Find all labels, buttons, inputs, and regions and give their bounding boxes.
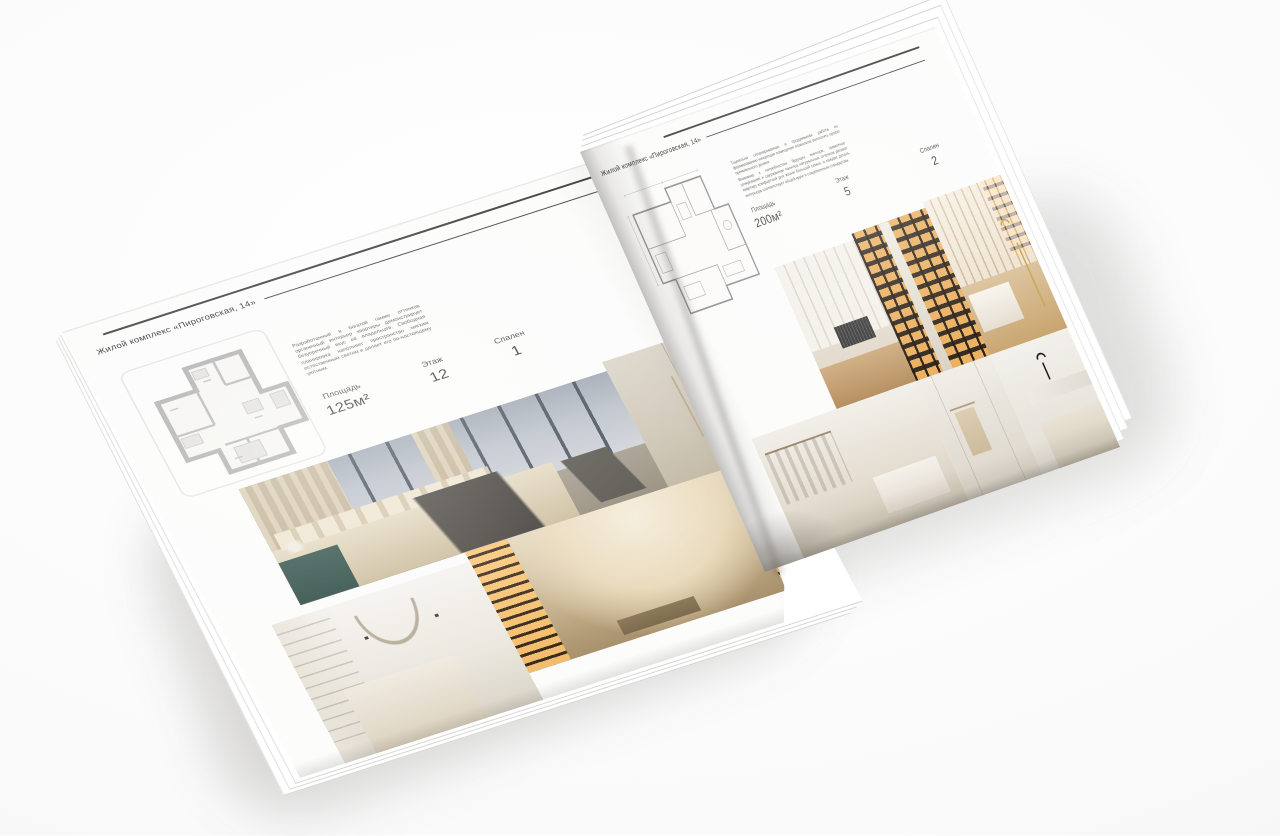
spec-bedrooms: Спален 1: [492, 328, 535, 362]
spec-area: Площадь 200м²: [748, 198, 785, 230]
spec-floor-value: 12: [425, 365, 452, 385]
spec-floor-value: 5: [838, 183, 856, 200]
header-rule: [706, 60, 925, 138]
brochure-mockup-scene: Жилой комплекс «Пироговская, 14»: [0, 0, 1280, 835]
spec-area: Площадь 125м²: [318, 380, 374, 418]
spec-bedrooms-value: 2: [923, 151, 947, 170]
header-rule: [264, 184, 620, 299]
spec-floor: Этаж 5: [834, 173, 857, 200]
spec-bedrooms: Спален 2: [918, 141, 947, 170]
spec-floor: Этаж 12: [420, 355, 453, 386]
description-left: Разработанный в богатой гамме оттенков о…: [291, 303, 436, 377]
top-rule: [103, 170, 613, 335]
